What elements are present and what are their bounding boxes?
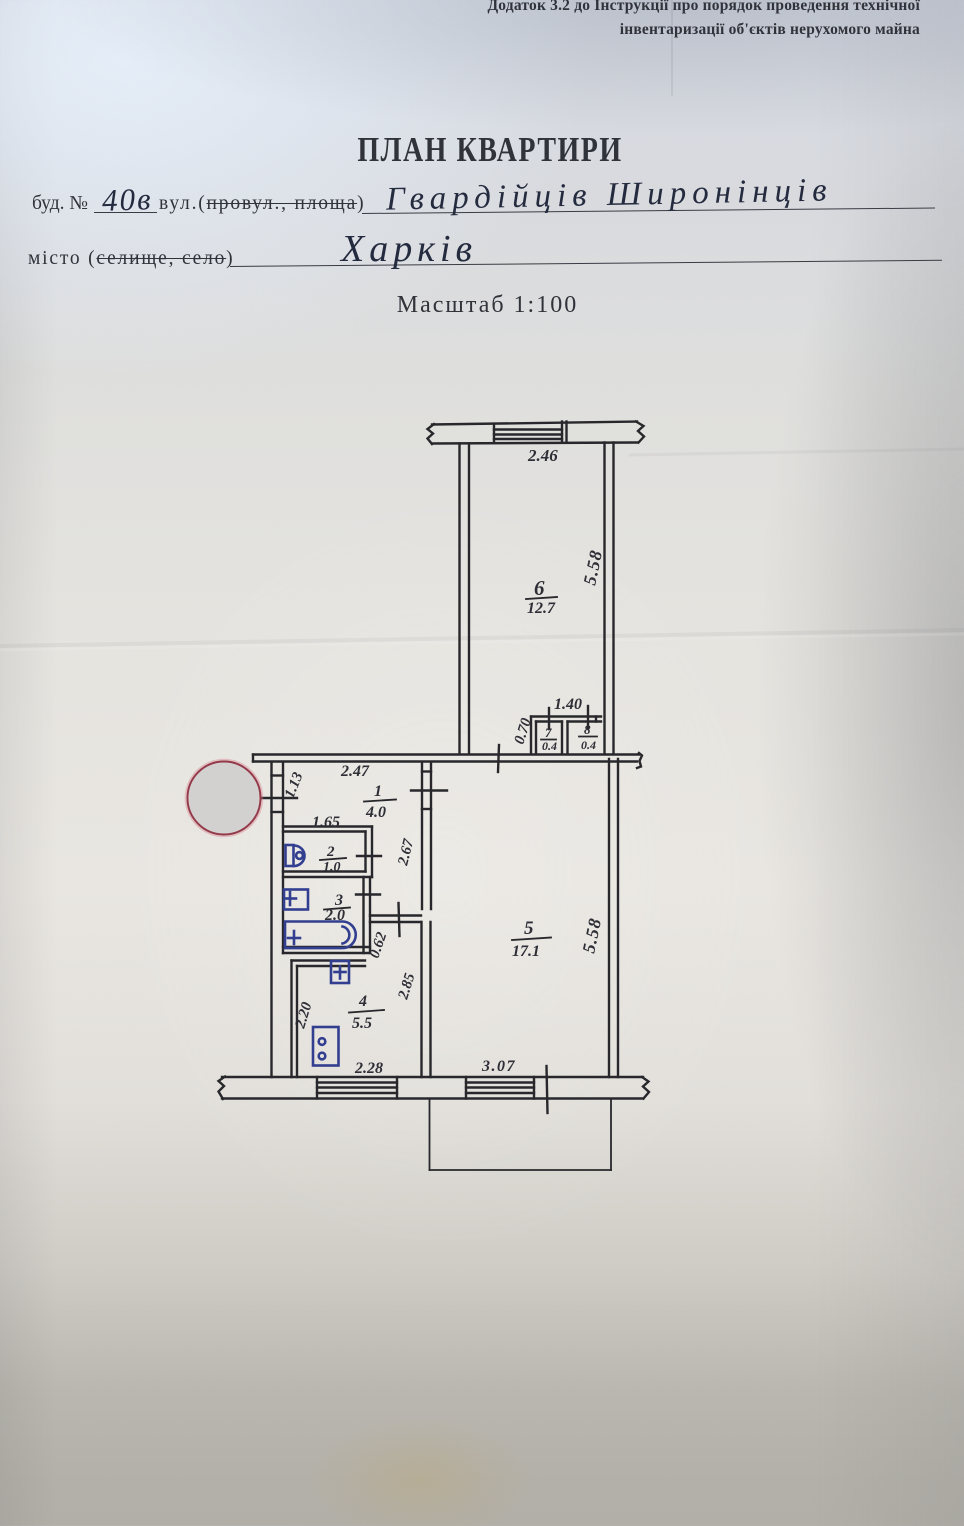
- svg-text:1: 1: [374, 783, 382, 800]
- svg-text:1.0: 1.0: [323, 860, 341, 875]
- svg-text:2.0: 2.0: [324, 907, 345, 924]
- svg-text:3.07: 3.07: [481, 1058, 516, 1075]
- svg-text:1.13: 1.13: [282, 770, 307, 801]
- svg-text:0.4: 0.4: [581, 738, 596, 752]
- svg-text:2.28: 2.28: [354, 1060, 383, 1077]
- svg-text:4: 4: [358, 993, 367, 1010]
- svg-text:7: 7: [545, 725, 552, 740]
- svg-text:5.58: 5.58: [578, 916, 605, 955]
- svg-text:12.7: 12.7: [527, 600, 556, 617]
- svg-text:5.5: 5.5: [352, 1015, 372, 1032]
- svg-text:8: 8: [584, 722, 591, 737]
- svg-text:2.46: 2.46: [527, 446, 558, 465]
- svg-text:2.85: 2.85: [395, 971, 418, 1002]
- svg-text:6: 6: [534, 576, 545, 600]
- svg-text:17.1: 17.1: [512, 943, 540, 960]
- svg-text:2.47: 2.47: [340, 763, 370, 780]
- svg-text:4.0: 4.0: [365, 804, 386, 821]
- svg-text:1.40: 1.40: [554, 696, 582, 713]
- svg-text:5.58: 5.58: [579, 548, 606, 587]
- svg-text:2.67: 2.67: [395, 837, 417, 868]
- svg-text:5: 5: [524, 918, 534, 939]
- svg-text:1.65: 1.65: [312, 814, 340, 831]
- svg-text:2: 2: [326, 844, 335, 860]
- svg-text:0.4: 0.4: [542, 739, 557, 753]
